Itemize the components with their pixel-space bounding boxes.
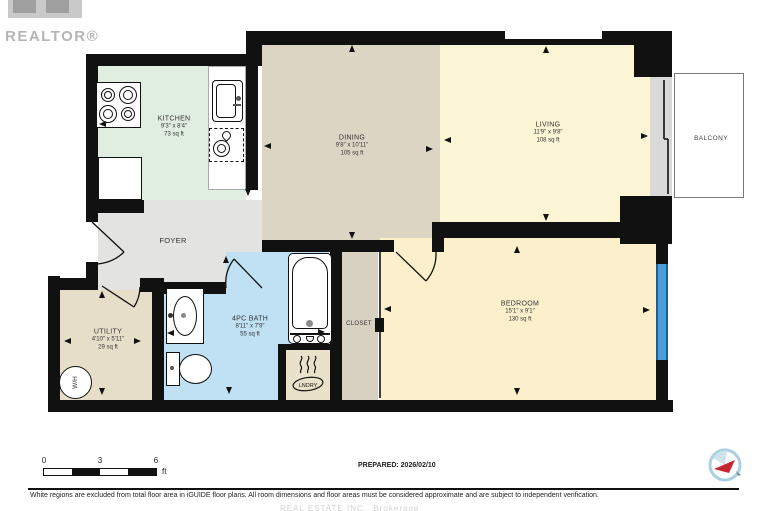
dimension-arrow-left-icon <box>264 143 271 149</box>
wall <box>438 222 622 238</box>
dimension-arrow-right-icon <box>641 133 648 139</box>
room-label-balcony: BALCONY <box>694 135 728 143</box>
wall <box>86 54 98 222</box>
dimension-arrow-down-icon <box>226 387 232 394</box>
wall <box>48 276 60 412</box>
realtor-logo-text: REALTOR® <box>5 28 99 45</box>
foyer-floor-east <box>226 200 262 252</box>
dimension-arrow-left-icon <box>384 306 391 312</box>
room-label-foyer: FOYER <box>159 236 186 246</box>
room-label-dining: DINING 9'8" x 10'11" 105 sq ft <box>336 134 368 159</box>
dimension-arrow-right-icon <box>643 307 650 313</box>
closet-sliding-door-handle <box>375 318 384 332</box>
wall <box>634 31 672 77</box>
scale-segment <box>128 469 156 475</box>
burner-icon <box>124 110 132 118</box>
faucet-icon <box>236 96 241 101</box>
bathtub-basin <box>292 257 328 329</box>
dimension-arrow-up-icon <box>514 246 520 253</box>
dimension-arrow-up-icon <box>99 291 105 298</box>
balcony-sliding-door <box>650 77 672 197</box>
room-label-bedroom: BEDROOM 15'1" x 9'1" 130 sq ft <box>501 300 539 325</box>
wall <box>262 240 394 252</box>
wall <box>656 360 668 412</box>
dimension-arrow-right-icon <box>134 338 141 344</box>
dishwasher-dial-inner <box>217 144 226 153</box>
room-label-living: LIVING 11'9" x 9'8" 108 sq ft <box>533 121 562 146</box>
wall <box>656 244 668 264</box>
wall <box>86 54 262 66</box>
scale-tick-6: 6 <box>154 456 158 465</box>
dimension-arrow-down-icon <box>245 189 251 196</box>
dimension-arrow-down-icon <box>514 388 520 395</box>
tub-faucet-knob <box>293 335 301 343</box>
wall <box>152 292 164 402</box>
scale-bar <box>43 468 157 476</box>
water-heater-label: W/H <box>72 376 79 389</box>
fridge-icon <box>98 157 142 200</box>
dimension-arrow-left-icon <box>444 137 451 143</box>
dimension-arrow-left-icon <box>99 121 106 127</box>
realtor-logo-icon <box>8 0 82 18</box>
window-living-top-line <box>505 39 602 45</box>
floor-plan-page: REALTOR® <box>0 0 767 511</box>
wall <box>86 200 144 213</box>
kitchen-sink-basin <box>216 84 236 118</box>
dimension-arrow-left-icon <box>64 338 71 344</box>
water-heater-icon: W/H <box>59 366 92 399</box>
realtor-logo-block-right <box>46 0 69 13</box>
wall <box>278 344 336 350</box>
faucet-icon <box>168 313 173 318</box>
dimension-arrow-up-icon <box>223 256 229 263</box>
wall <box>278 348 286 400</box>
sink-drain <box>181 313 186 318</box>
disclaimer-text: White regions are excluded from total fl… <box>30 492 599 499</box>
tub-drain <box>306 320 313 327</box>
burner-icon <box>123 90 133 100</box>
scale-segment <box>44 469 72 475</box>
laundry-floor <box>286 350 330 400</box>
dimension-arrow-up-icon <box>543 46 549 53</box>
scale-unit: ft <box>162 467 166 476</box>
footer-divider <box>28 488 739 490</box>
prepared-date: PREPARED: 2026/02/10 <box>358 462 436 469</box>
wall <box>48 278 98 290</box>
dimension-arrow-down-icon <box>349 232 355 239</box>
scale-segment <box>72 469 100 475</box>
room-label-closet: CLOSET <box>346 321 372 329</box>
faucet-handle <box>233 104 241 106</box>
wall <box>140 278 164 292</box>
dimension-arrow-right-icon <box>426 146 433 152</box>
room-label-kitchen: KITCHEN 9'3" x 8'4" 73 sq ft <box>158 115 191 140</box>
scale-tick-3: 3 <box>98 456 102 465</box>
scale-tick-0: 0 <box>42 456 46 465</box>
dimension-arrow-down-icon <box>543 214 549 221</box>
realtor-logo-block-left <box>13 0 36 13</box>
dimension-arrow-left-icon <box>167 330 174 336</box>
room-label-utility: UTILITY 4'10" x 5'11" 29 sq ft <box>92 328 124 353</box>
wall <box>602 31 636 45</box>
dimension-arrow-up-icon <box>349 45 355 52</box>
scale-segment <box>100 469 128 475</box>
toilet-bowl-icon <box>179 354 212 384</box>
wall <box>258 31 505 45</box>
burner-icon <box>104 91 112 99</box>
dimension-arrow-right-icon <box>318 329 325 335</box>
iguide-compass-logo <box>706 446 744 484</box>
wall <box>48 400 673 412</box>
wall <box>246 54 258 190</box>
wall <box>620 196 672 244</box>
burner-icon <box>103 109 113 119</box>
room-label-bath: 4PC BATH 8'11" x 7'9" 55 sq ft <box>232 315 268 340</box>
window-living-top <box>505 31 602 39</box>
tub-faucet-knob <box>317 335 325 343</box>
toilet-flush-button <box>170 366 174 370</box>
watermark-text: REAL ESTATE INC., Brokerage <box>280 504 419 511</box>
dimension-arrow-down-icon <box>99 388 105 395</box>
window-bedroom <box>656 264 668 362</box>
